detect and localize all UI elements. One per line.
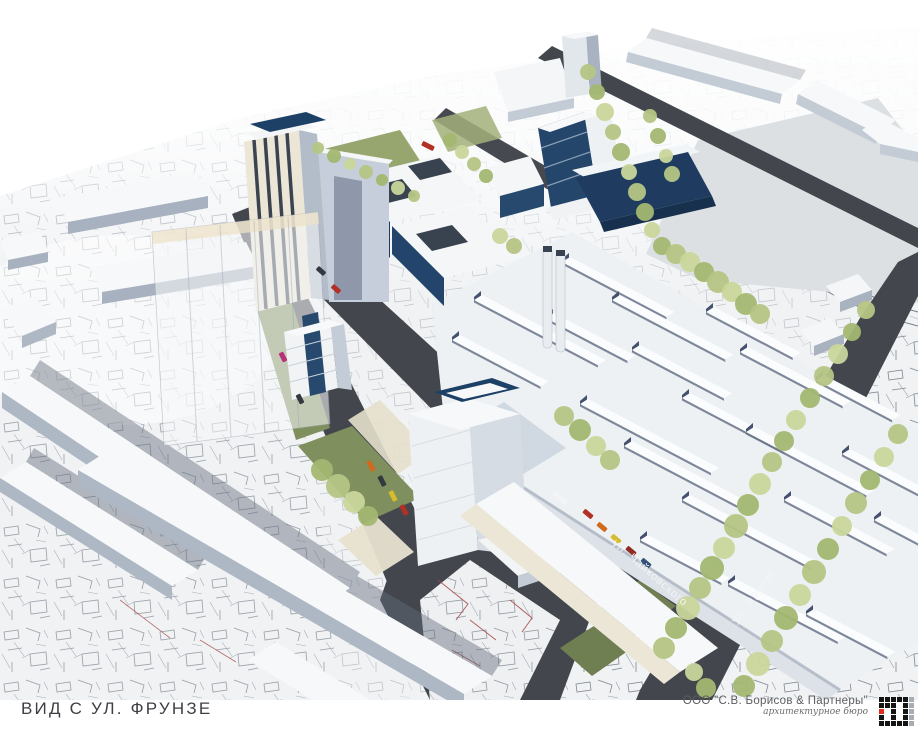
tree (814, 366, 834, 386)
logo-pixel (891, 703, 896, 708)
tree (828, 344, 848, 364)
render-viewport: ул. Чайковского ул. Фрунзе (0, 0, 918, 700)
tree (327, 149, 341, 163)
tree (376, 174, 388, 186)
logo-pixel (897, 697, 902, 702)
tree (789, 584, 811, 606)
tree (580, 64, 596, 80)
logo-pixel (879, 709, 884, 714)
tree (596, 103, 614, 121)
tree (888, 424, 908, 444)
tree (685, 663, 703, 681)
tree (817, 538, 839, 560)
logo-pixel (879, 703, 884, 708)
tree (724, 514, 748, 538)
logo-pixel (897, 703, 902, 708)
logo-pixel (909, 703, 914, 708)
tree (492, 228, 508, 244)
logo-pixel (903, 703, 908, 708)
tree (665, 617, 687, 639)
company-tagline: архитектурное бюро (683, 707, 868, 717)
logo-pixel (909, 697, 914, 702)
logo-pixel (897, 721, 902, 726)
logo-pixel (903, 709, 908, 714)
tree (689, 577, 711, 599)
logo-pixel (879, 721, 884, 726)
tree (554, 406, 574, 426)
tree (344, 158, 356, 170)
tree (358, 506, 378, 526)
tower-behind (317, 148, 393, 302)
tree (605, 124, 621, 140)
logo-pixel (891, 709, 896, 714)
logo-pixel (891, 721, 896, 726)
logo-pixel (897, 709, 902, 714)
tree (874, 447, 894, 467)
tree (600, 450, 620, 470)
tree (860, 470, 880, 490)
tree (636, 203, 654, 221)
logo-pixel (885, 715, 890, 720)
tree (761, 630, 783, 652)
tree (832, 516, 852, 536)
tree (359, 165, 373, 179)
tree (621, 164, 637, 180)
tree (653, 637, 675, 659)
title-block: ВИД С УЛ. ФРУНЗЕ ООО "С.В. Борисов & Пар… (0, 690, 918, 733)
tree (443, 133, 457, 147)
tree (589, 84, 605, 100)
logo-pixel (891, 697, 896, 702)
tree (612, 143, 630, 161)
tree (737, 494, 759, 516)
logo-pixel (903, 721, 908, 726)
logo-pixel (885, 703, 890, 708)
tree (664, 166, 680, 182)
tree (479, 169, 493, 183)
tree (802, 560, 826, 584)
tree (643, 109, 657, 123)
tree (569, 419, 591, 441)
tree (762, 452, 782, 472)
logo-pixel (885, 697, 890, 702)
tree (774, 606, 798, 630)
logo-pixel (891, 715, 896, 720)
tree (750, 304, 770, 324)
tree (749, 473, 771, 495)
logo-pixel (903, 715, 908, 720)
logo-pixel (909, 715, 914, 720)
tree (843, 323, 861, 341)
tree (391, 181, 405, 195)
tree (408, 190, 420, 202)
presentation-board: ул. Чайковского ул. Фрунзе ВИД С УЛ. ФРУ… (0, 0, 918, 733)
tree (746, 652, 770, 676)
company-name: ООО "С.В. Борисов & Партнеры" (683, 695, 868, 707)
logo-pixel (903, 697, 908, 702)
tree (800, 388, 820, 408)
company-logo-icon (879, 697, 914, 726)
view-title: ВИД С УЛ. ФРУНЗЕ (21, 699, 212, 719)
logo-pixel (909, 721, 914, 726)
company-block: ООО "С.В. Борисов & Партнеры" архитектур… (683, 695, 868, 717)
tree (700, 556, 724, 580)
logo-pixel (879, 697, 884, 702)
tree (506, 238, 522, 254)
tree (786, 410, 806, 430)
tree (774, 431, 794, 451)
logo-pixel (897, 715, 902, 720)
tree (467, 157, 481, 171)
logo-pixel (909, 709, 914, 714)
tree (713, 537, 735, 559)
tree (659, 149, 673, 163)
tree (650, 128, 666, 144)
tree (312, 142, 324, 154)
logo-pixel (885, 709, 890, 714)
logo-pixel (879, 715, 884, 720)
tree (857, 301, 875, 319)
tree (455, 145, 469, 159)
tree (644, 222, 660, 238)
logo-pixel (885, 721, 890, 726)
tree (628, 183, 646, 201)
tree (845, 492, 867, 514)
